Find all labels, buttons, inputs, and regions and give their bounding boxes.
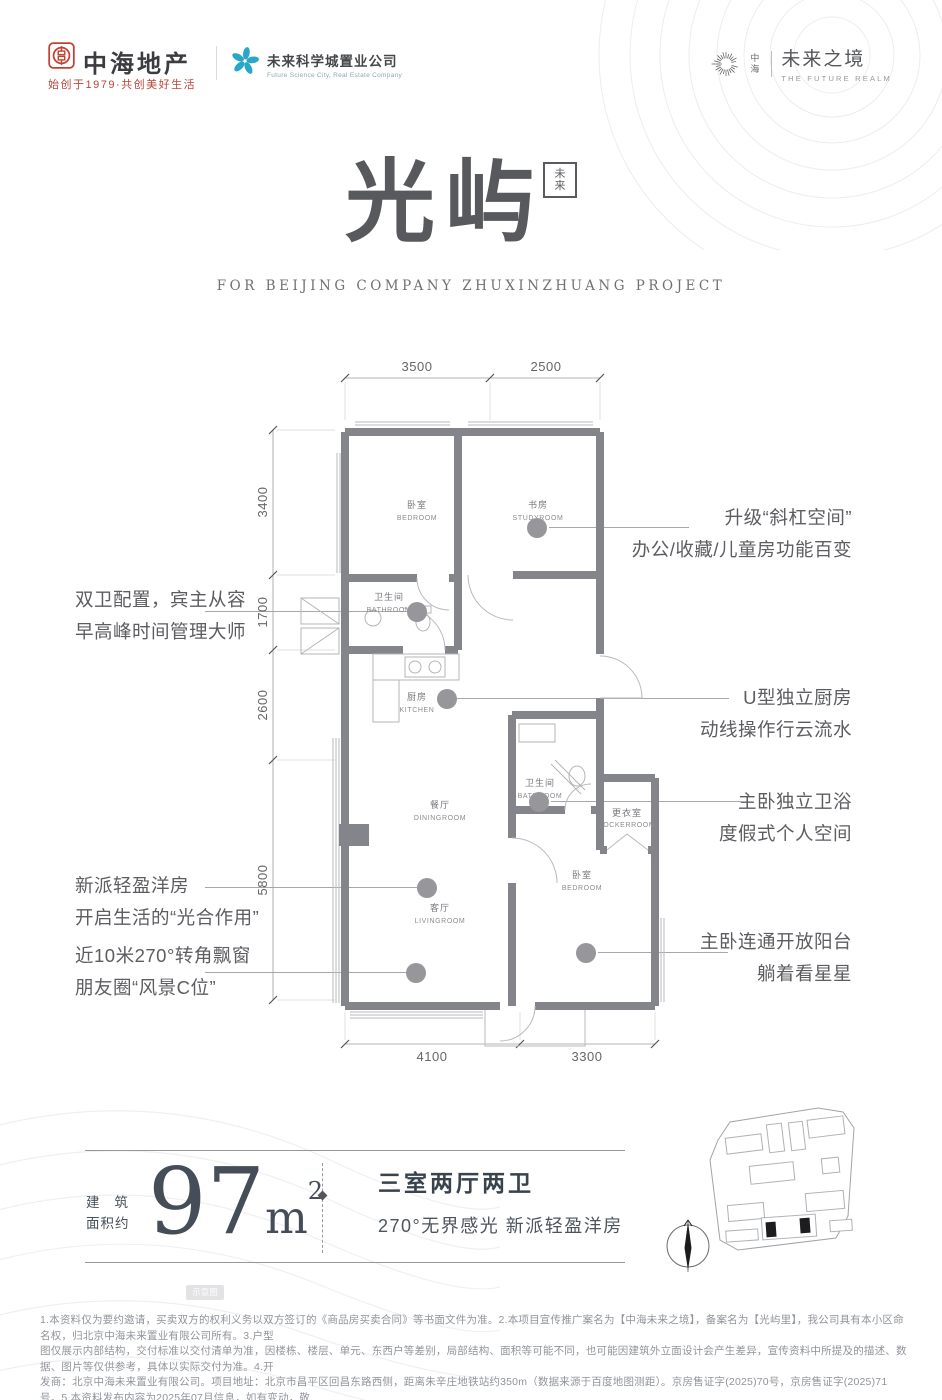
dot-bath2 bbox=[529, 792, 549, 812]
dot-bath1 bbox=[407, 602, 427, 622]
disclaimer-line-3: 发商：北京中海未来置业有限公司。项目地址：北京市昌平区回昌东路西侧，距离朱辛庄地… bbox=[40, 1375, 908, 1400]
dot-kitchen bbox=[437, 689, 457, 709]
dim-top-3500: 3500 bbox=[402, 359, 433, 374]
callout-line: 升级“斜杠空间” bbox=[632, 502, 852, 534]
room-bedroom1-en: BEDROOM bbox=[397, 515, 437, 522]
callout-line: 近10米270°转角飘窗 bbox=[75, 940, 251, 972]
zhonghai-brand: 中海地产 bbox=[48, 42, 191, 79]
realm-mini-mark: 中海 bbox=[750, 53, 762, 74]
callout-line: 办公/收藏/儿童房功能百变 bbox=[632, 534, 852, 566]
fsc-subtitle: Future Science City, Real Estate Company bbox=[267, 72, 402, 79]
callout-line: 动线操作行云流水 bbox=[700, 714, 852, 746]
realm-divider bbox=[771, 51, 772, 77]
callout-line: 早高峰时间管理大师 bbox=[75, 616, 246, 648]
features-line: 270°无界感光 新派轻盈洋房 bbox=[378, 1212, 623, 1238]
dim-left-2600: 2600 bbox=[255, 690, 270, 721]
dim-top-2500: 2500 bbox=[531, 359, 562, 374]
zhonghai-logo-icon bbox=[48, 42, 75, 69]
realm-subtitle: THE FUTURE REALM bbox=[781, 74, 892, 83]
zhonghai-tagline: 始创于1979·共创美好生活 bbox=[48, 76, 196, 92]
title-seal-text: 未来 bbox=[554, 168, 567, 192]
dim-bottom-4100: 4100 bbox=[417, 1049, 448, 1064]
title-seal: 未来 bbox=[543, 162, 577, 198]
callout-line: 主卧独立卫浴 bbox=[719, 786, 852, 818]
dot-bay-window bbox=[406, 963, 426, 983]
page-title: 光屿 bbox=[0, 158, 890, 248]
dimension-left: 3400 1700 2600 5800 bbox=[255, 426, 335, 1004]
info-rule-bottom bbox=[85, 1262, 625, 1263]
dim-left-3400: 3400 bbox=[255, 487, 270, 518]
room-bath1-cn: 卫生间 bbox=[374, 591, 404, 602]
future-realm-brand: 中海 未来之境 THE FUTURE REALM bbox=[711, 44, 892, 83]
area-label: 建筑 面积约 bbox=[86, 1192, 143, 1234]
room-bedroom1-cn: 卧室 bbox=[407, 499, 427, 510]
callout-line: 主卧连通开放阳台 bbox=[700, 926, 852, 958]
realm-name: 未来之境 bbox=[781, 44, 892, 71]
dim-bottom-3300: 3300 bbox=[572, 1049, 603, 1064]
brand-divider bbox=[216, 46, 217, 80]
dot-study bbox=[527, 518, 547, 538]
callout-new-style-house: 新派轻盈洋房 开启生活的“光合作用” bbox=[75, 870, 259, 934]
layout-title: 三室两厅两卫 bbox=[378, 1164, 534, 1198]
room-living-cn: 客厅 bbox=[430, 902, 450, 913]
room-study-cn: 书房 bbox=[528, 499, 548, 510]
highlighted-unit bbox=[800, 1218, 811, 1234]
callout-dual-bathrooms: 双卫配置，宾主从容 早高峰时间管理大师 bbox=[75, 584, 246, 648]
future-science-city-brand: 未来科学城置业公司 Future Science City, Real Esta… bbox=[230, 46, 402, 79]
dot-master-bedroom bbox=[576, 943, 596, 963]
room-kitchen-en: KITCHEN bbox=[400, 707, 435, 714]
callout-open-balcony: 主卧连通开放阳台 躺着看星星 bbox=[700, 926, 852, 990]
callout-line: 度假式个人空间 bbox=[719, 818, 852, 850]
room-bedroom2-cn: 卧室 bbox=[572, 869, 592, 880]
area-label-line1: 建筑 bbox=[86, 1192, 143, 1213]
room-kitchen-cn: 厨房 bbox=[407, 691, 427, 702]
room-bath1-en: BATHROOM bbox=[367, 607, 412, 614]
site-plan bbox=[650, 1098, 895, 1278]
room-bedroom2-en: BEDROOM bbox=[562, 885, 602, 892]
info-dashed-divider bbox=[322, 1163, 323, 1253]
callout-bay-window: 近10米270°转角飘窗 朋友圈“风景C位” bbox=[75, 940, 251, 1004]
disclaimer-line-1: 1.本资料仅为要约邀请，买卖双方的权利义务以双方签订的《商品房买卖合同》等书面文… bbox=[40, 1313, 908, 1344]
walls bbox=[345, 432, 655, 1006]
dimension-top: 3500 2500 bbox=[341, 359, 604, 420]
room-labels: 卧室 BEDROOM 书房 STUDYROOM 卫生间 BATHROOM 厨房 … bbox=[367, 499, 656, 925]
elevator-shaft bbox=[301, 598, 339, 654]
area-number: 97 bbox=[148, 1148, 265, 1255]
room-living-en: LIVINGROOM bbox=[415, 918, 466, 925]
site-buildings bbox=[725, 1116, 852, 1242]
callout-line: 开启生活的“光合作用” bbox=[75, 902, 259, 934]
sunburst-icon bbox=[711, 49, 741, 79]
dimension-bottom: 4100 3300 bbox=[341, 1012, 659, 1064]
disclaimer-line-2: 图仅展示内部结构，交付标准以交付清单为准，因楼栋、楼层、单元、东西户等差别，局部… bbox=[40, 1344, 908, 1375]
page-subtitle: FOR BEIJING COMPANY ZHUXINZHUANG PROJECT bbox=[0, 278, 942, 294]
room-dining-en: DININGROOM bbox=[414, 815, 466, 822]
zhonghai-name: 中海地产 bbox=[83, 44, 191, 79]
schematic-badge: 示意图 bbox=[186, 1285, 224, 1300]
area-value: 97m2 bbox=[148, 1156, 323, 1248]
room-locker-en: LOCKERROOM bbox=[599, 822, 656, 829]
dim-left-1700: 1700 bbox=[255, 597, 270, 628]
callout-master-bath: 主卧独立卫浴 度假式个人空间 bbox=[719, 786, 852, 850]
fsc-flower-icon bbox=[230, 46, 260, 76]
area-unit: m bbox=[265, 1191, 308, 1244]
callout-dots bbox=[406, 518, 596, 983]
callout-u-kitchen: U型独立厨房 动线操作行云流水 bbox=[700, 682, 852, 746]
callout-slash-space: 升级“斜杠空间” 办公/收藏/儿童房功能百变 bbox=[632, 502, 852, 566]
area-label-line2: 面积约 bbox=[86, 1213, 143, 1234]
room-dining-cn: 餐厅 bbox=[430, 799, 450, 810]
room-bath2-cn: 卫生间 bbox=[525, 777, 555, 788]
windows bbox=[333, 422, 664, 1046]
callout-line: 双卫配置，宾主从容 bbox=[75, 584, 246, 616]
callout-line: 新派轻盈洋房 bbox=[75, 870, 259, 902]
fsc-name: 未来科学城置业公司 bbox=[267, 50, 402, 70]
dot-living bbox=[417, 878, 437, 898]
floor-plan: 3500 2500 3400 1700 2600 5800 bbox=[255, 358, 675, 1068]
callout-line: 朋友圈“风景C位” bbox=[75, 972, 251, 1004]
callout-line: U型独立厨房 bbox=[700, 682, 852, 714]
highlighted-unit bbox=[766, 1222, 777, 1238]
callout-line: 躺着看星星 bbox=[700, 958, 852, 990]
disclaimer: 1.本资料仅为要约邀请，买卖双方的权利义务以双方签订的《商品房买卖合同》等书面文… bbox=[40, 1313, 908, 1400]
compass-icon bbox=[667, 1220, 709, 1272]
poster-page: 中海地产 始创于1979·共创美好生活 未来科学城置业公司 Future Sci… bbox=[0, 0, 942, 1400]
room-locker-cn: 更衣室 bbox=[612, 807, 642, 818]
